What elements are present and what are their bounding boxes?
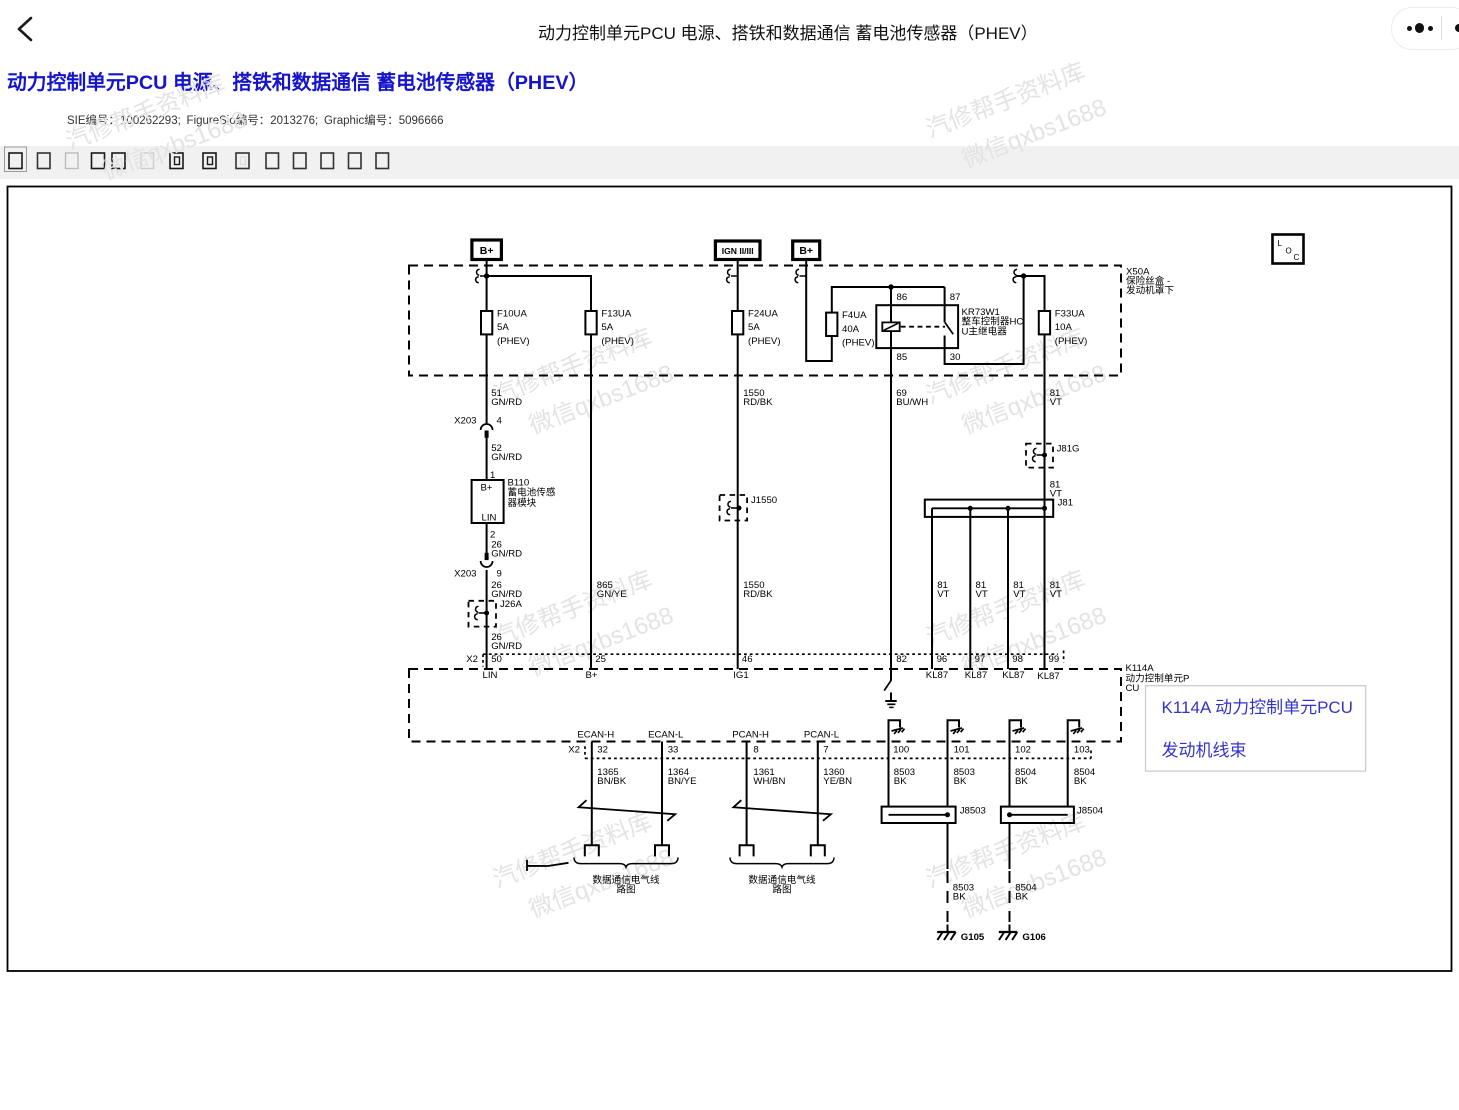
svg-text:KL87: KL87 <box>1002 670 1024 681</box>
svg-text:BK: BK <box>953 891 966 902</box>
svg-text:PCAN-H: PCAN-H <box>732 730 769 741</box>
svg-text:5A: 5A <box>748 322 760 333</box>
svg-text:B+: B+ <box>799 245 813 257</box>
svg-text:KL87: KL87 <box>926 670 948 681</box>
svg-text:J8503: J8503 <box>960 806 986 817</box>
svg-text:J8504: J8504 <box>1077 806 1104 817</box>
svg-text:J81G: J81G <box>1057 444 1080 455</box>
svg-text:VT: VT <box>1050 397 1062 408</box>
svg-text:F4UA: F4UA <box>842 310 867 321</box>
svg-text:46: 46 <box>742 654 753 665</box>
svg-text:(PHEV): (PHEV) <box>842 337 875 348</box>
svg-text:101: 101 <box>954 745 970 756</box>
svg-text:VT: VT <box>1013 589 1025 600</box>
svg-text:BK: BK <box>1074 776 1087 787</box>
svg-text:GN/RD: GN/RD <box>491 549 522 560</box>
svg-text:U主继电器: U主继电器 <box>962 325 1008 337</box>
svg-text:40A: 40A <box>842 324 860 335</box>
svg-text:BK: BK <box>1015 891 1028 902</box>
svg-text:86: 86 <box>897 292 908 303</box>
svg-text:X2: X2 <box>568 745 580 756</box>
svg-text:(PHEV): (PHEV) <box>1055 336 1088 347</box>
svg-text:BN/BK: BN/BK <box>597 776 626 787</box>
svg-text:路图: 路图 <box>772 884 791 896</box>
svg-text:K114A: K114A <box>1126 663 1155 674</box>
svg-text:LIN: LIN <box>482 512 497 523</box>
svg-text:BK: BK <box>1015 776 1028 787</box>
svg-text:103: 103 <box>1074 745 1090 756</box>
svg-text:G106: G106 <box>1022 932 1045 943</box>
svg-text:KL87: KL87 <box>965 670 987 681</box>
svg-text:F33UA: F33UA <box>1055 309 1085 320</box>
svg-text:J81: J81 <box>1058 497 1073 508</box>
svg-text:器模块: 器模块 <box>508 497 537 509</box>
svg-text:5A: 5A <box>497 322 509 333</box>
svg-text:RD/BK: RD/BK <box>743 589 773 600</box>
svg-text:发动机罩下: 发动机罩下 <box>1126 285 1174 297</box>
svg-text:F24UA: F24UA <box>748 309 778 320</box>
svg-text:C: C <box>1294 253 1300 262</box>
svg-text:VT: VT <box>937 589 949 600</box>
svg-text:ECAN-L: ECAN-L <box>648 730 684 741</box>
svg-text:102: 102 <box>1015 745 1031 756</box>
svg-text:82: 82 <box>896 654 907 665</box>
svg-text:F13UA: F13UA <box>601 309 631 320</box>
svg-text:GN/RD: GN/RD <box>491 452 522 463</box>
svg-text:32: 32 <box>597 745 608 756</box>
svg-text:GN/RD: GN/RD <box>491 641 522 652</box>
svg-text:(PHEV): (PHEV) <box>748 336 781 347</box>
svg-text:蓄电池传感: 蓄电池传感 <box>508 487 556 499</box>
svg-text:X203: X203 <box>454 416 476 427</box>
svg-text:85: 85 <box>897 352 908 363</box>
svg-text:ECAN-H: ECAN-H <box>577 730 614 741</box>
svg-text:RD/BK: RD/BK <box>743 397 773 408</box>
svg-text:50: 50 <box>491 654 502 665</box>
svg-text:4: 4 <box>497 416 503 427</box>
svg-text:YE/BN: YE/BN <box>823 776 852 787</box>
svg-text:96: 96 <box>937 654 948 665</box>
svg-text:7: 7 <box>823 745 828 756</box>
svg-text:VT: VT <box>1050 589 1062 600</box>
svg-text:J1550: J1550 <box>751 495 777 506</box>
svg-text:K114A 动力控制单元PCU: K114A 动力控制单元PCU <box>1162 698 1353 717</box>
svg-text:25: 25 <box>595 654 606 665</box>
svg-text:BK: BK <box>954 776 967 787</box>
svg-text:B+: B+ <box>585 670 597 681</box>
svg-text:BK: BK <box>894 776 907 787</box>
svg-text:100: 100 <box>893 745 909 756</box>
svg-text:33: 33 <box>668 745 679 756</box>
svg-text:X2: X2 <box>466 654 478 665</box>
svg-text:PCAN-L: PCAN-L <box>804 730 840 741</box>
svg-text:CU: CU <box>1126 683 1140 694</box>
svg-text:GN/RD: GN/RD <box>491 397 522 408</box>
svg-text:GN/YE: GN/YE <box>597 589 627 600</box>
svg-text:97: 97 <box>975 654 986 665</box>
svg-text:B+: B+ <box>480 483 492 494</box>
svg-text:98: 98 <box>1012 654 1023 665</box>
svg-text:L: L <box>1278 239 1283 248</box>
svg-text:B+: B+ <box>480 245 494 257</box>
svg-text:J26A: J26A <box>500 599 522 610</box>
svg-text:路图: 路图 <box>616 884 635 896</box>
svg-text:9: 9 <box>497 569 502 580</box>
svg-text:KL87: KL87 <box>1037 671 1059 682</box>
svg-text:发动机线束: 发动机线束 <box>1162 741 1247 760</box>
svg-text:BN/YE: BN/YE <box>668 776 697 787</box>
svg-text:30: 30 <box>950 352 961 363</box>
svg-text:G105: G105 <box>961 932 985 943</box>
svg-text:(PHEV): (PHEV) <box>601 336 634 347</box>
svg-text:IGN II/III: IGN II/III <box>722 246 754 256</box>
svg-text:IG1: IG1 <box>733 670 748 681</box>
svg-text:VT: VT <box>976 589 988 600</box>
svg-text:5A: 5A <box>601 322 613 333</box>
svg-text:8: 8 <box>753 745 758 756</box>
svg-text:99: 99 <box>1049 654 1060 665</box>
svg-text:LIN: LIN <box>483 670 498 681</box>
svg-text:BU/WH: BU/WH <box>896 397 928 408</box>
svg-text:WH/BN: WH/BN <box>753 776 785 787</box>
svg-text:O: O <box>1286 247 1292 256</box>
svg-text:F10UA: F10UA <box>497 309 527 320</box>
svg-text:X203: X203 <box>454 569 476 580</box>
svg-text:(PHEV): (PHEV) <box>497 336 530 347</box>
svg-text:87: 87 <box>950 292 961 303</box>
svg-text:10A: 10A <box>1055 322 1073 333</box>
